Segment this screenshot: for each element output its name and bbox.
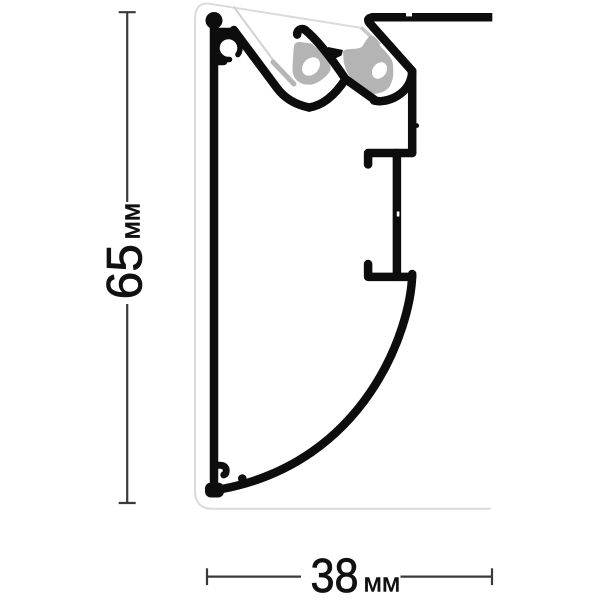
svg-text:мм: мм	[364, 568, 401, 598]
svg-text:38: 38	[311, 549, 359, 600]
